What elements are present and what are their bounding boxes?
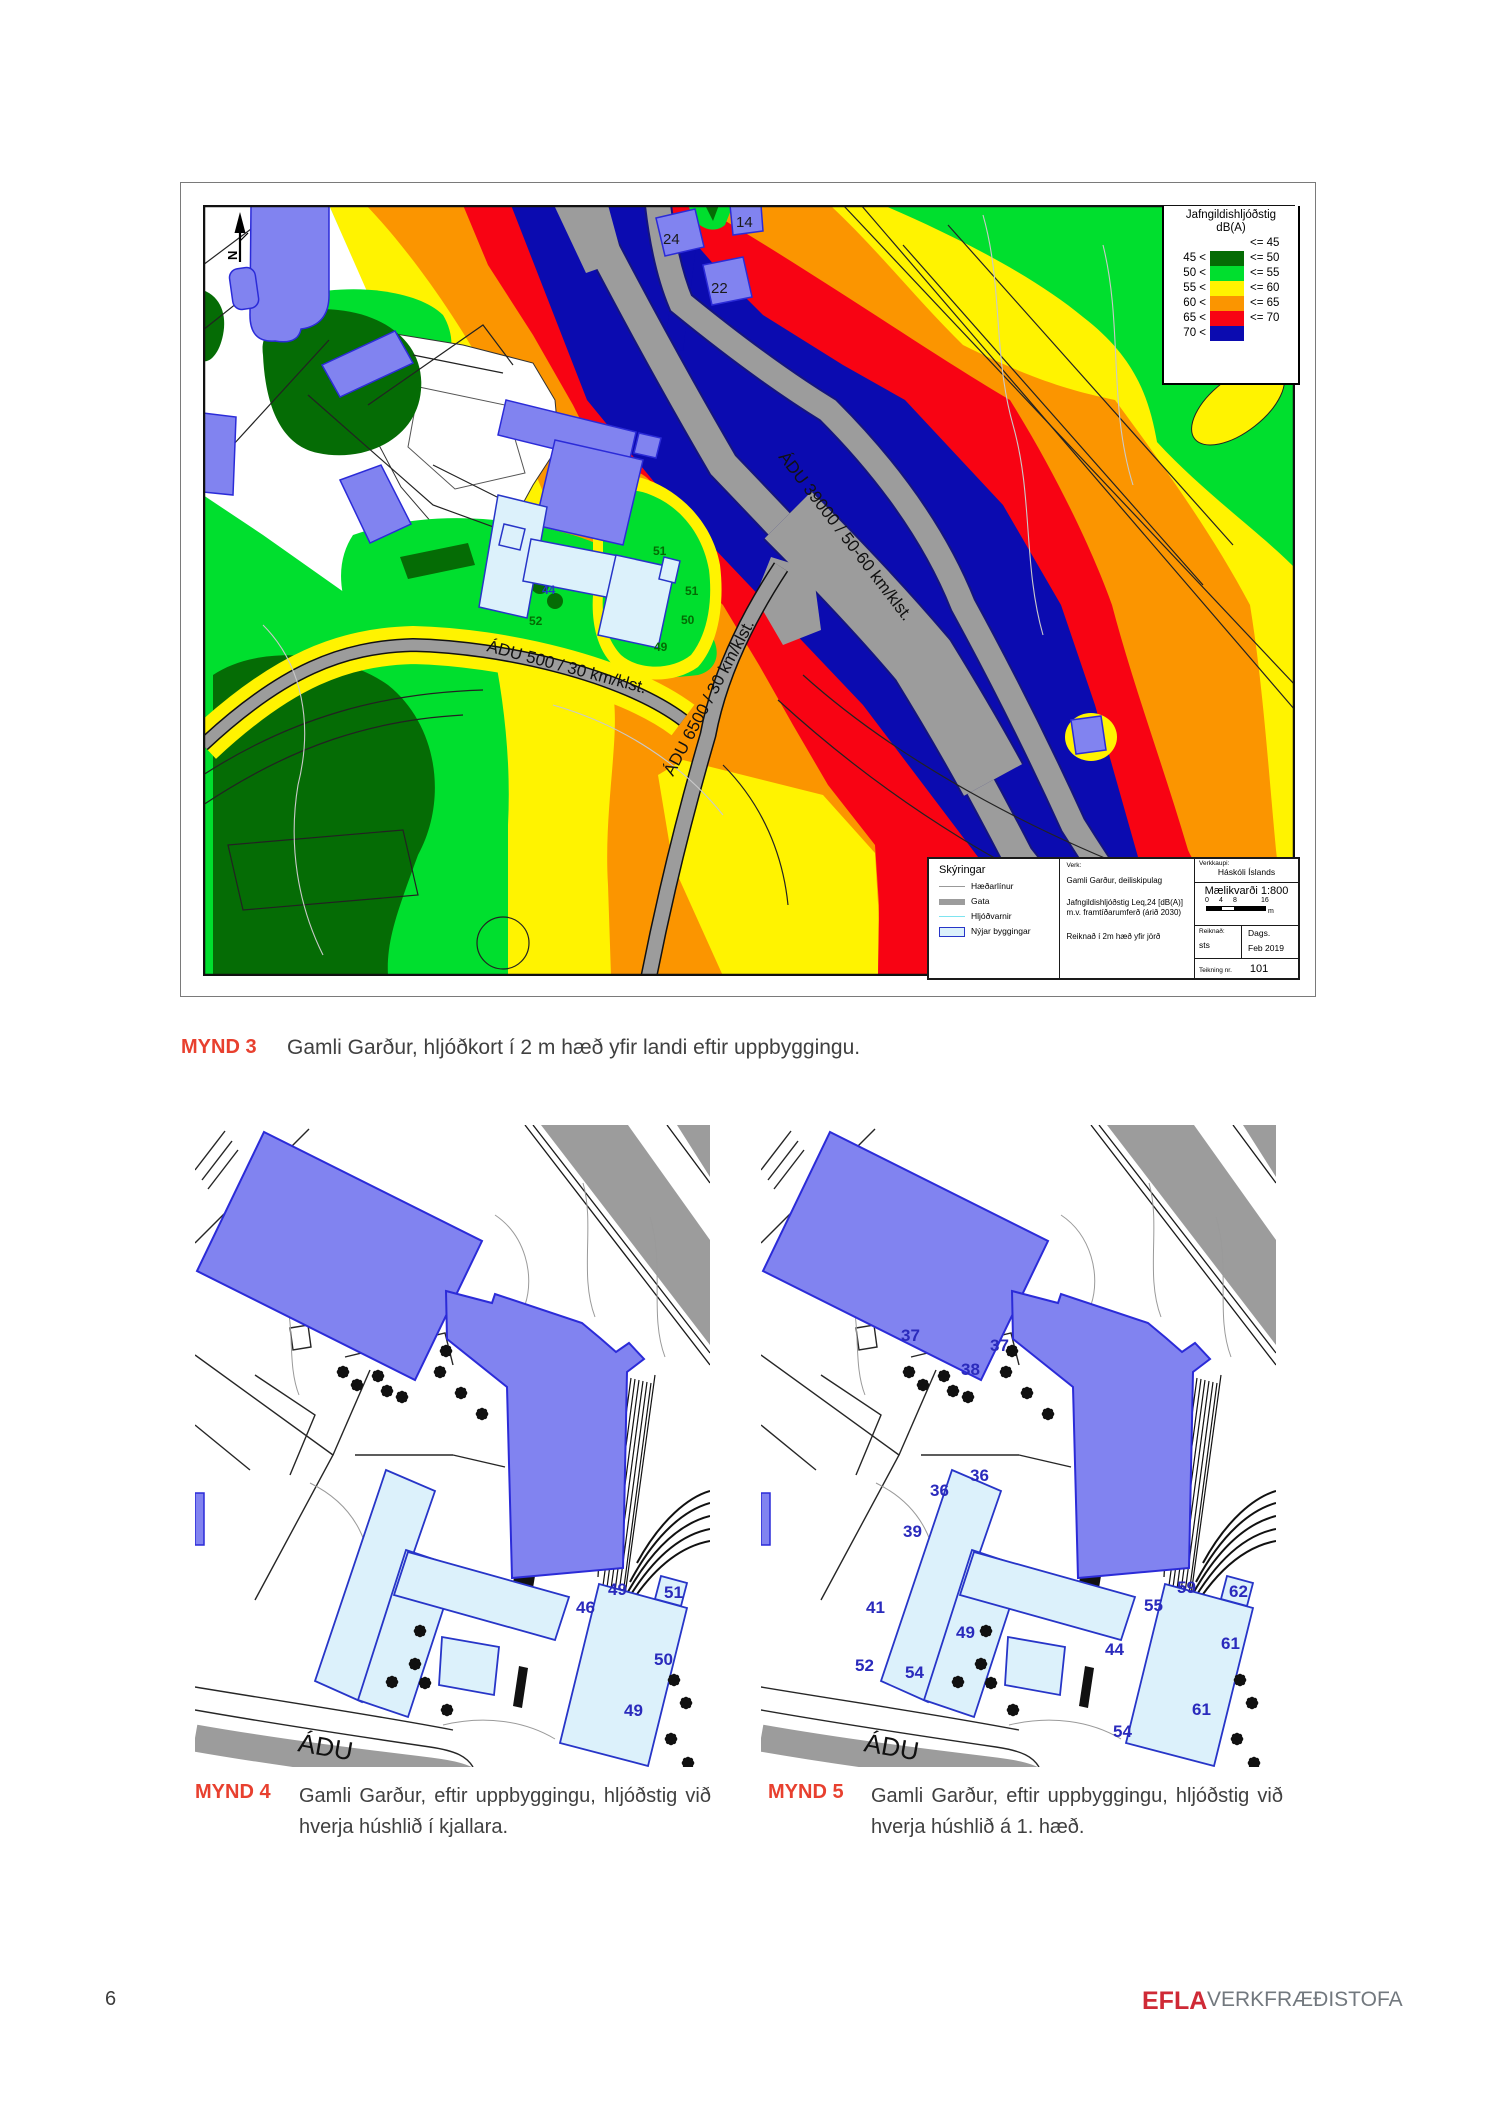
svg-text:46: 46 xyxy=(576,1598,595,1617)
svg-text:52: 52 xyxy=(529,614,543,628)
svg-text:54: 54 xyxy=(1113,1722,1132,1741)
svg-text:37: 37 xyxy=(990,1336,1009,1355)
svg-text:38: 38 xyxy=(961,1360,980,1379)
svg-text:51: 51 xyxy=(664,1583,683,1602)
svg-text:55: 55 xyxy=(1144,1596,1163,1615)
svg-text:51: 51 xyxy=(685,584,699,598)
svg-text:62: 62 xyxy=(1229,1582,1248,1601)
svg-text:36: 36 xyxy=(970,1466,989,1485)
svg-text:24: 24 xyxy=(663,231,680,248)
svg-text:49: 49 xyxy=(624,1701,643,1720)
svg-text:39: 39 xyxy=(903,1522,922,1541)
svg-text:N: N xyxy=(225,251,240,260)
svg-text:37: 37 xyxy=(901,1326,920,1345)
svg-text:14: 14 xyxy=(736,214,753,231)
svg-text:22: 22 xyxy=(711,280,728,297)
svg-text:50: 50 xyxy=(654,1650,673,1669)
svg-text:49: 49 xyxy=(654,640,668,654)
svg-text:59: 59 xyxy=(1177,1578,1196,1597)
svg-text:36: 36 xyxy=(930,1481,949,1500)
svg-text:41: 41 xyxy=(866,1598,885,1617)
svg-text:61: 61 xyxy=(1192,1700,1211,1719)
svg-text:54: 54 xyxy=(905,1663,924,1682)
svg-text:51: 51 xyxy=(653,544,667,558)
svg-text:44: 44 xyxy=(1105,1640,1124,1659)
svg-text:44: 44 xyxy=(542,583,556,597)
svg-text:50: 50 xyxy=(681,613,695,627)
svg-text:61: 61 xyxy=(1221,1634,1240,1653)
svg-text:49: 49 xyxy=(608,1580,627,1599)
svg-text:52: 52 xyxy=(855,1656,874,1675)
svg-text:49: 49 xyxy=(956,1623,975,1642)
